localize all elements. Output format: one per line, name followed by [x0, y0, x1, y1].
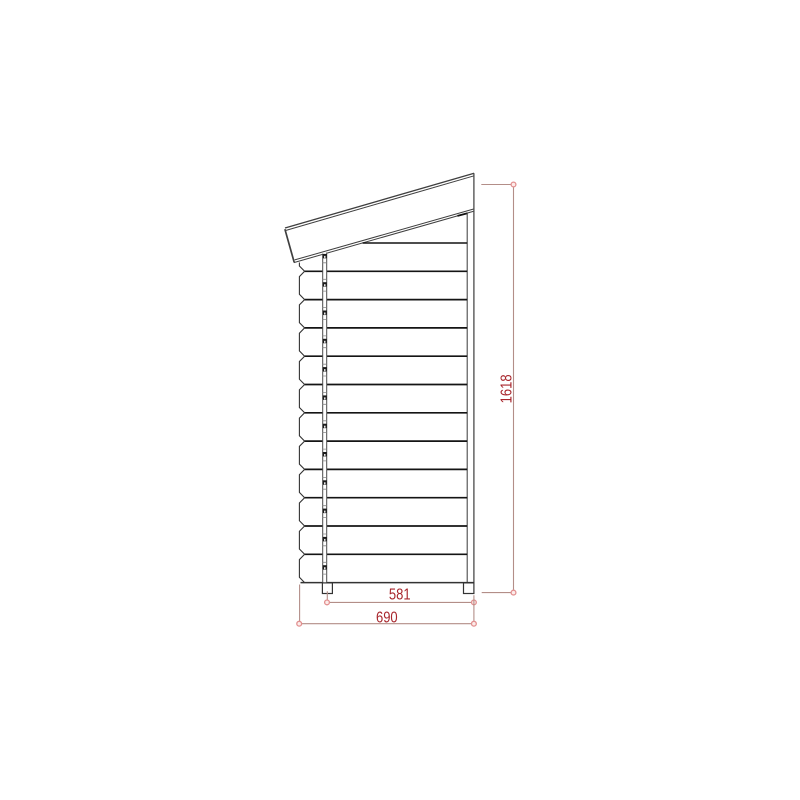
svg-text:690: 690 [376, 609, 398, 626]
svg-text:581: 581 [389, 587, 411, 604]
svg-text:1618: 1618 [499, 374, 516, 403]
